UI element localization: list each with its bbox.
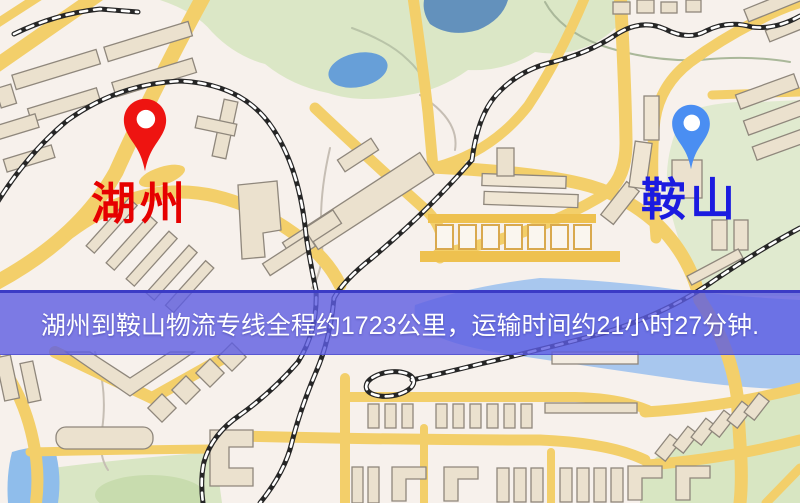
map-background: [0, 0, 800, 503]
destination-marker[interactable]: [665, 104, 717, 170]
origin-city-label: 湖州: [91, 181, 189, 226]
destination-pin-shape: [672, 105, 710, 169]
map-pin-icon: [665, 104, 717, 170]
map-commercial-block: [420, 214, 620, 262]
route-info-banner: 湖州到鞍山物流专线全程约1723公里，运输时间约21小时27分钟.: [0, 290, 800, 355]
map-pin-icon: [118, 98, 172, 172]
map-view: 湖州 鞍山 湖州到鞍山物流专线全程约1723公里，运输时间约21小时27分钟.: [0, 0, 800, 503]
origin-pin-shape: [124, 99, 166, 171]
origin-pin-hole: [137, 110, 156, 128]
destination-city-label: 鞍山: [641, 177, 739, 222]
destination-pin-hole: [684, 115, 701, 132]
origin-marker[interactable]: [118, 98, 172, 172]
route-info-text: 湖州到鞍山物流专线全程约1723公里，运输时间约21小时27分钟.: [41, 306, 759, 342]
